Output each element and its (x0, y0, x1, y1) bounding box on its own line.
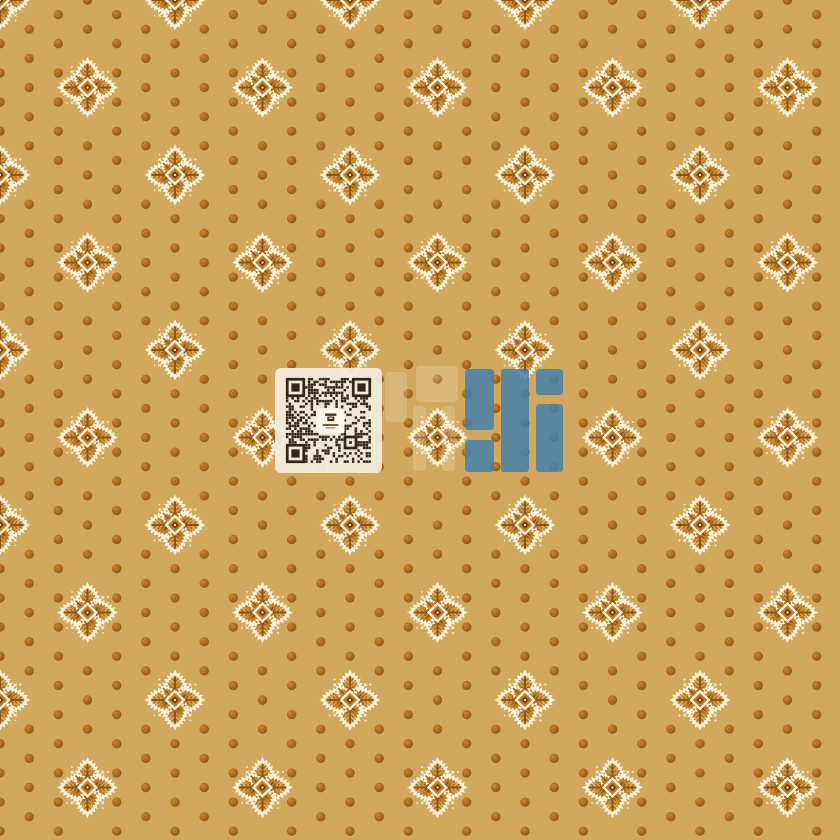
qr-code-icon (275, 368, 382, 473)
watermark-layer (275, 366, 563, 473)
pattern-canvas (0, 0, 840, 840)
brand-logo-icon (465, 369, 563, 472)
wallpaper-pattern (0, 0, 840, 840)
ghost-watermark (385, 366, 458, 471)
motifs-layer (0, 0, 818, 818)
